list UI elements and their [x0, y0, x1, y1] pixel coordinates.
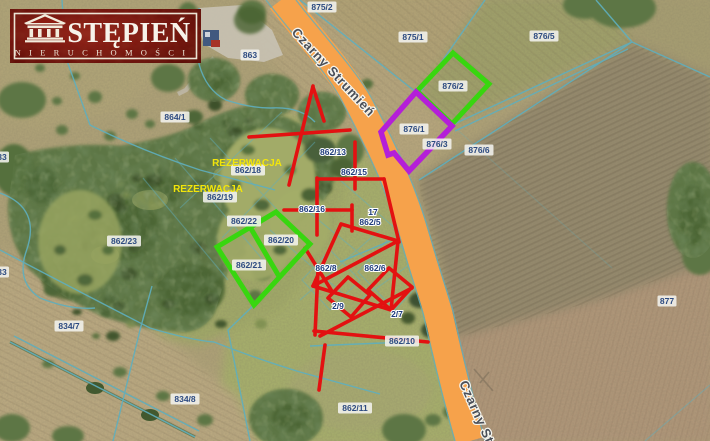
- svg-text:834/8: 834/8: [174, 394, 196, 404]
- svg-text:862/13: 862/13: [320, 147, 346, 157]
- svg-text:STĘPIEŃ: STĘPIEŃ: [67, 18, 190, 49]
- svg-text:862/10: 862/10: [389, 336, 415, 346]
- svg-text:862/16: 862/16: [299, 204, 325, 214]
- svg-text:REZERWACJA: REZERWACJA: [212, 158, 282, 169]
- svg-text:862/6: 862/6: [364, 263, 386, 273]
- svg-text:875/1: 875/1: [402, 32, 424, 42]
- svg-text:862/5: 862/5: [359, 217, 381, 227]
- svg-text:862/22: 862/22: [231, 216, 257, 226]
- svg-text:862/8: 862/8: [315, 263, 337, 273]
- svg-text:2/9: 2/9: [332, 301, 344, 311]
- svg-text:863: 863: [243, 50, 257, 60]
- svg-text:876/6: 876/6: [468, 145, 490, 155]
- svg-text:864/1: 864/1: [164, 112, 186, 122]
- svg-text:876/1: 876/1: [403, 124, 425, 134]
- svg-text:862/21: 862/21: [236, 260, 262, 270]
- svg-text:877: 877: [660, 296, 674, 306]
- svg-text:NIERUCHOMOŚCI: NIERUCHOMOŚCI: [15, 48, 194, 58]
- svg-text:862/20: 862/20: [268, 235, 294, 245]
- svg-text:875/2: 875/2: [311, 2, 333, 12]
- svg-text:REZERWACJA: REZERWACJA: [173, 184, 243, 195]
- svg-text:33: 33: [0, 152, 7, 162]
- svg-text:834/7: 834/7: [58, 321, 80, 331]
- svg-text:17: 17: [368, 207, 378, 217]
- svg-text:862/23: 862/23: [111, 236, 137, 246]
- svg-text:876/5: 876/5: [533, 31, 555, 41]
- svg-text:862/15: 862/15: [341, 167, 367, 177]
- svg-text:2/7: 2/7: [391, 309, 403, 319]
- svg-text:876/2: 876/2: [442, 81, 464, 91]
- svg-text:33: 33: [0, 267, 7, 277]
- svg-text:876/3: 876/3: [426, 139, 448, 149]
- svg-text:862/11: 862/11: [342, 403, 368, 413]
